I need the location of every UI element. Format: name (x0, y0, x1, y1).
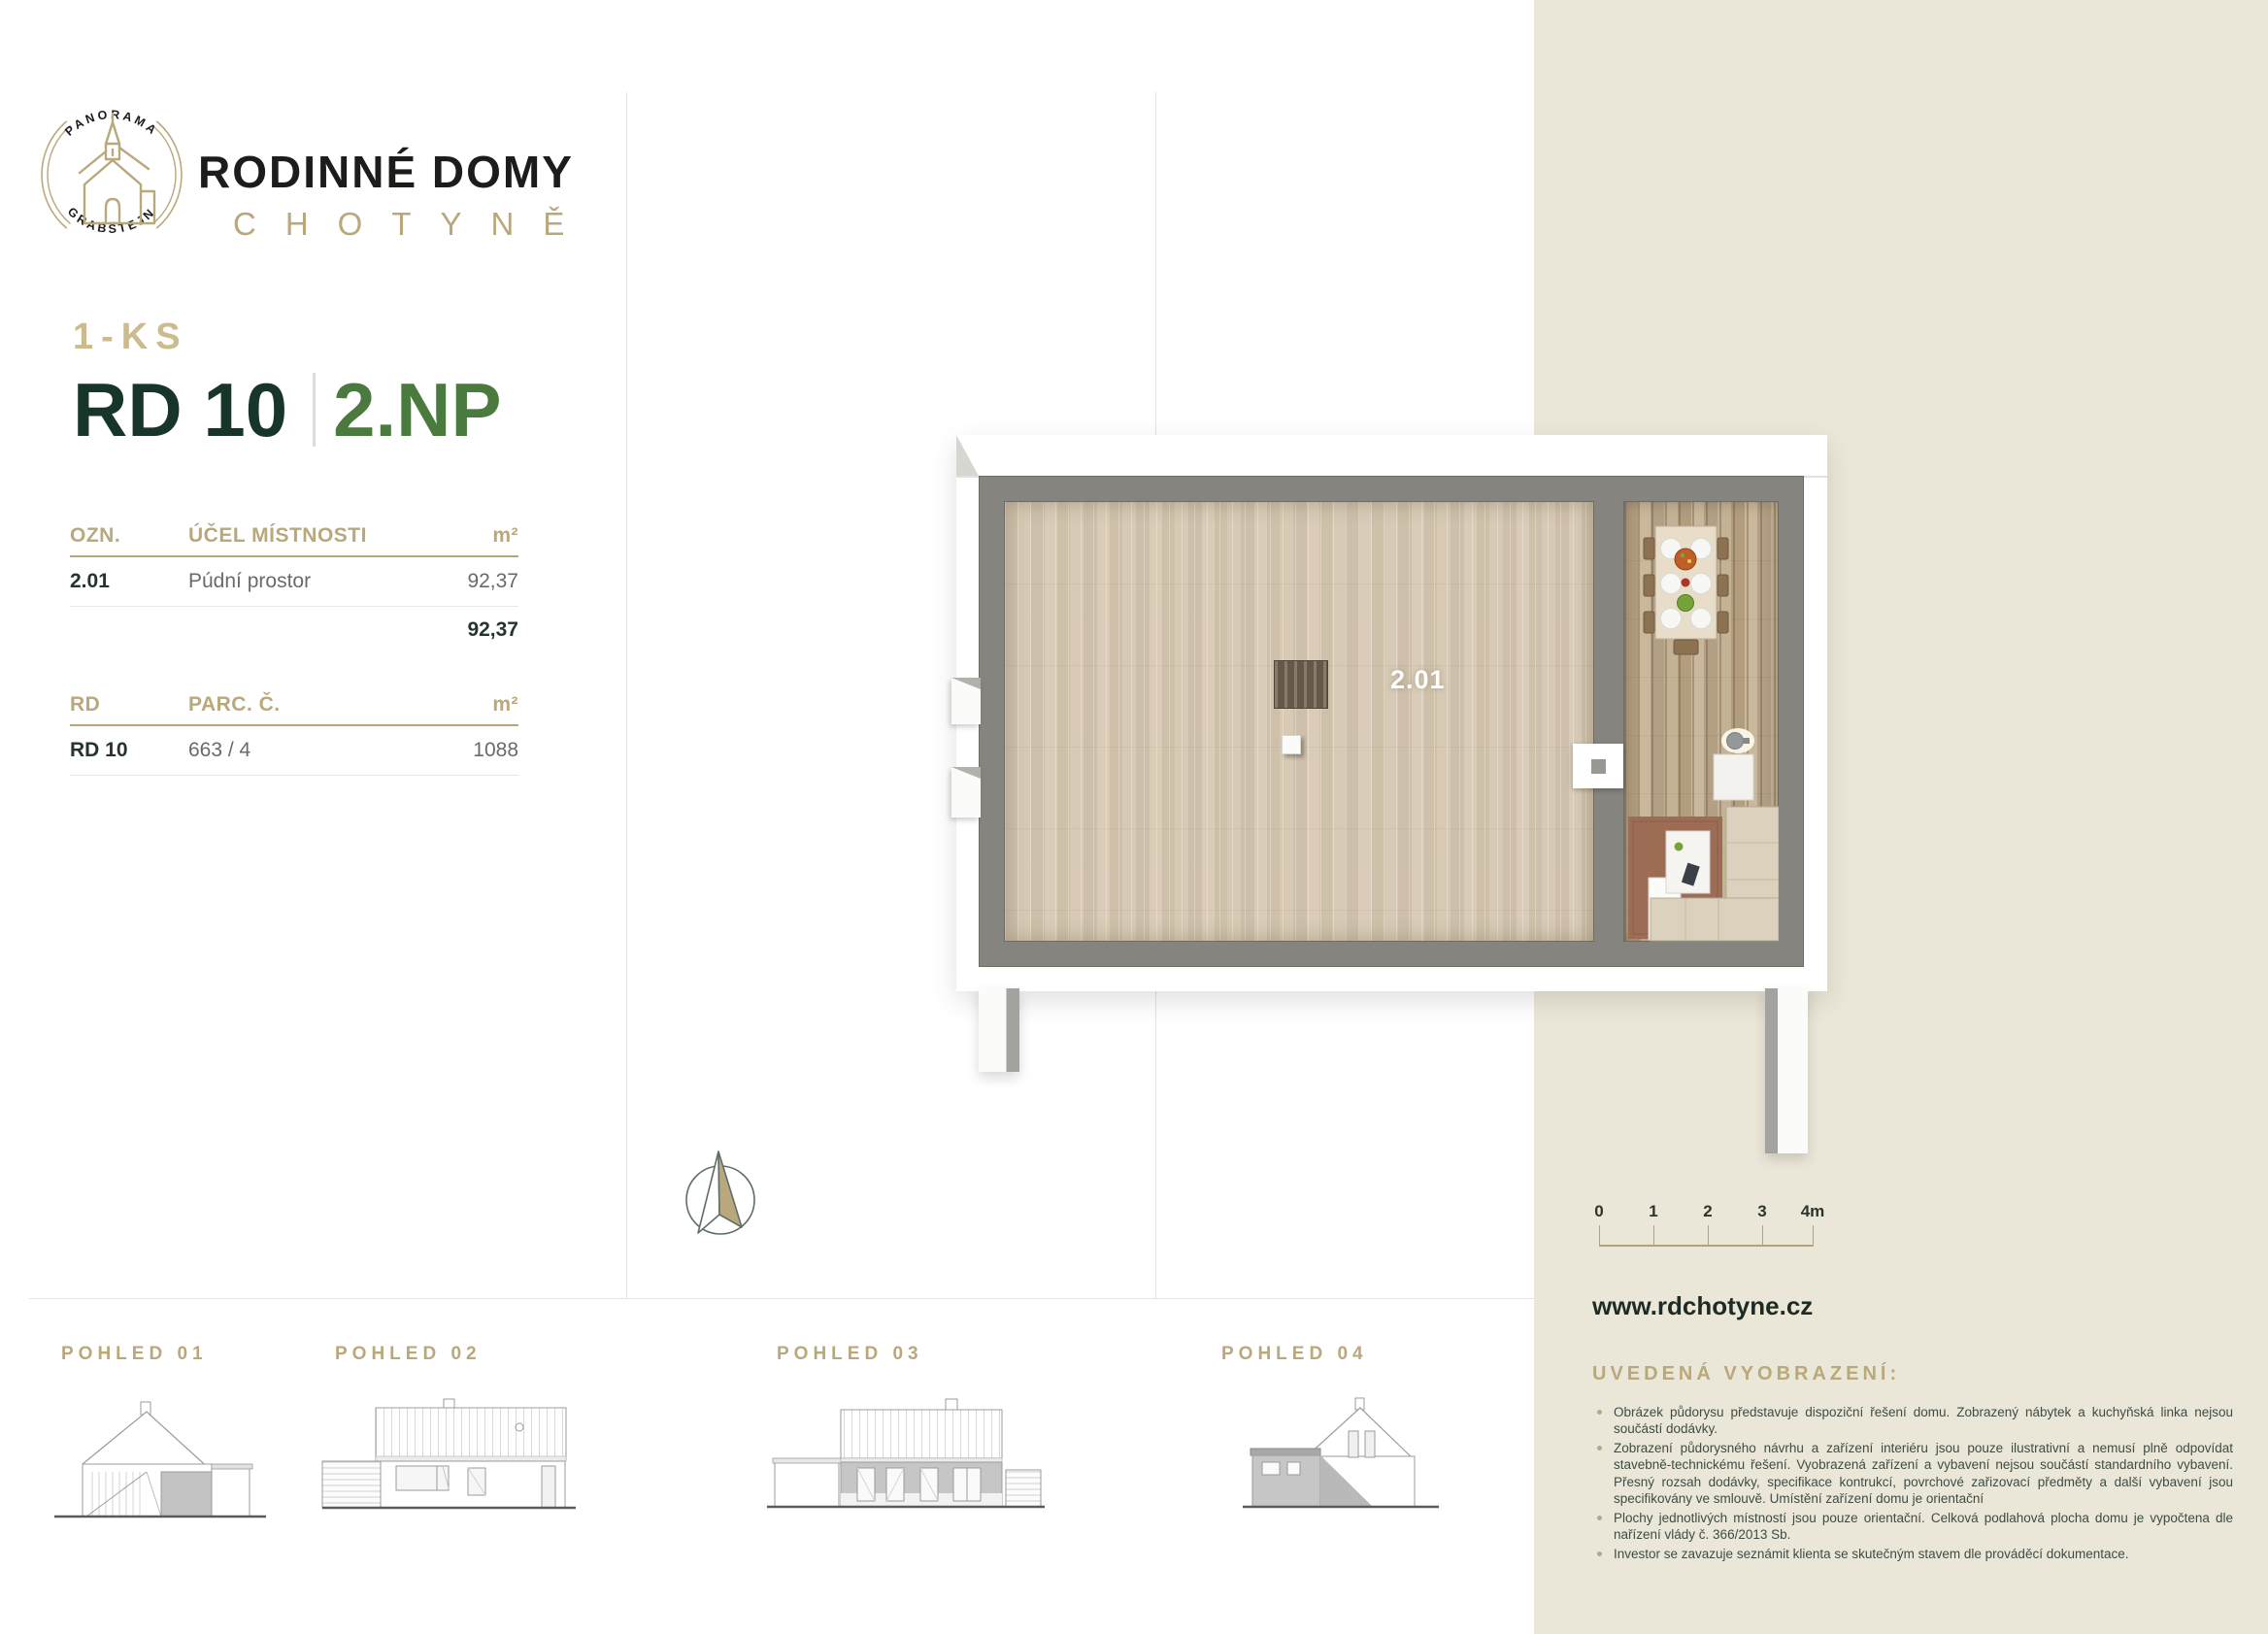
view-label-pohled-04: POHLED 04 (1221, 1344, 1368, 1365)
view-label-pohled-01: POHLED 01 (61, 1344, 208, 1365)
disclaimer-item: Plochy jednotlivých místností jsou pouze… (1592, 1510, 2233, 1543)
col-rd: RD (70, 693, 188, 717)
room-area: 92,37 (429, 570, 518, 593)
floor-plan: 2.01 (951, 432, 1835, 1170)
view-label-pohled-03: POHLED 03 (777, 1344, 923, 1365)
wall-stub-left (979, 988, 1019, 1072)
disclaimer-item: Obrázek půdorysu představuje dispoziční … (1592, 1404, 2233, 1437)
disclaimer-item: Zobrazení půdorysného návrhu a zařízení … (1592, 1440, 2233, 1507)
parcel-number: 663 / 4 (188, 739, 429, 762)
dining-set-icon (1644, 526, 1728, 654)
room-ozn: 2.01 (70, 570, 188, 593)
room-purpose: Púdní prostor (188, 570, 429, 593)
column-block (1282, 735, 1301, 754)
scale-tick (1653, 1225, 1655, 1247)
sofa-area-icon (1628, 807, 1779, 941)
rooms-table-header: OZN. ÚČEL MÍSTNOSTI m² (70, 505, 518, 555)
table-row: 2.01 Púdní prostor 92,37 (70, 557, 518, 607)
parcel-rd: RD 10 (70, 739, 188, 762)
rooms-table: OZN. ÚČEL MÍSTNOSTI m² 2.01 Púdní prosto… (70, 505, 518, 653)
brand-logo-badge: PANORAMA GRABŠTEJN (39, 99, 184, 250)
scale-tick-label: 3 (1757, 1202, 1766, 1221)
scale-tick-label: 1 (1649, 1202, 1657, 1221)
table-total-row: 92,37 (70, 607, 518, 653)
brand-subtitle: CHOTYNĚ (233, 206, 593, 243)
wall-stub-right (1765, 988, 1808, 1153)
parcel-area: 1088 (429, 739, 518, 762)
column-divider-left (626, 92, 627, 1298)
brochure-page: PANORAMA GRABŠTEJN RODINNÉ DOMY CHOTYNĚ … (0, 0, 2268, 1634)
unit-heading: RD 10 2.NP (73, 361, 502, 458)
door-symbol (1573, 744, 1623, 788)
unit-type-label: 1-KS (73, 317, 188, 358)
floor-number: 2.NP (333, 366, 501, 454)
elevation-drawing-02 (320, 1396, 578, 1537)
scale-baseline (1599, 1245, 1814, 1247)
scale-tick-label: 2 (1703, 1202, 1712, 1221)
room-number-label: 2.01 (1390, 665, 1446, 695)
disclaimer-item: Investor se zavazuje seznámit klienta se… (1592, 1546, 2233, 1562)
north-arrow-icon (682, 1150, 759, 1239)
elevation-drawing-03 (765, 1394, 1047, 1538)
door-core (1591, 759, 1606, 774)
dormer-cap (951, 678, 981, 689)
attic-room-floor (1004, 501, 1594, 942)
footer-divider (29, 1298, 1534, 1299)
col-purpose: ÚČEL MÍSTNOSTI (188, 524, 429, 548)
parcel-table: RD PARC. Č. m² RD 10 663 / 4 1088 (70, 674, 518, 776)
wall-lamp-icon (1721, 728, 1754, 753)
view-label-pohled-02: POHLED 02 (335, 1344, 482, 1365)
dormer-cap (951, 767, 981, 779)
scale-tick (1599, 1225, 1601, 1247)
table-row: RD 10 663 / 4 1088 (70, 726, 518, 776)
heading-divider (313, 373, 316, 447)
elevation-drawing-01 (47, 1396, 270, 1537)
dormer-left-upper (951, 678, 981, 724)
cabinet-icon (1714, 754, 1753, 800)
house-number: RD 10 (73, 366, 287, 454)
brand-title: RODINNÉ DOMY (198, 146, 574, 198)
disclaimer-title: UVEDENÁ VYOBRAZENÍ: (1592, 1363, 1900, 1385)
furniture-layer (1623, 501, 1779, 942)
stairs-opening (1274, 660, 1328, 709)
col-area: m² (429, 693, 518, 717)
website-link[interactable]: www.rdchotyne.cz (1592, 1291, 1813, 1321)
badge-bottom-label: GRABŠTEJN (65, 205, 158, 236)
scale-tick (1762, 1225, 1764, 1247)
scale-tick (1708, 1225, 1710, 1247)
dormer-left-lower (951, 767, 981, 817)
elevation-drawing-04 (1206, 1394, 1449, 1538)
disclaimer-list: Obrázek půdorysu představuje dispoziční … (1592, 1404, 2233, 1565)
col-ozn: OZN. (70, 524, 188, 548)
scale-tick-label: 4m (1801, 1202, 1825, 1221)
scale-bar: 0 1 2 3 4m (1592, 1202, 1825, 1252)
parcel-table-header: RD PARC. Č. m² (70, 674, 518, 724)
scale-tick (1813, 1225, 1815, 1247)
col-area: m² (429, 524, 518, 548)
scale-tick-label: 0 (1594, 1202, 1603, 1221)
col-parc: PARC. Č. (188, 693, 429, 717)
total-area: 92,37 (429, 618, 518, 642)
